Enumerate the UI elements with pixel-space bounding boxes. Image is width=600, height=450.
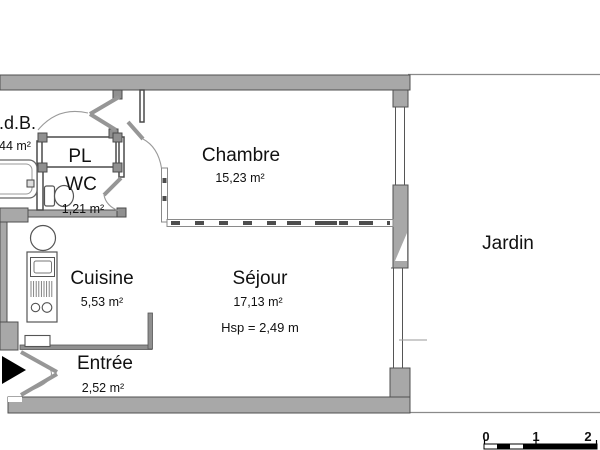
room-label-sdb: S.d.B. xyxy=(0,113,36,133)
room-label-pl: PL xyxy=(68,146,91,167)
dashed-partition xyxy=(162,168,394,227)
post xyxy=(38,163,47,172)
left-wall-band xyxy=(0,208,28,222)
chambre-door-leaf xyxy=(128,122,143,139)
bottom-wall xyxy=(8,397,410,413)
top-wall xyxy=(0,75,410,90)
right-wall-bottom-block xyxy=(390,368,410,397)
room-label-jardin: Jardin xyxy=(482,233,534,254)
room-area-chambre: 15,23 m² xyxy=(215,171,264,185)
chambre-window xyxy=(396,107,405,185)
room-label-sejour: Séjour xyxy=(233,268,289,289)
toilet-tank xyxy=(45,186,55,206)
hob-burner xyxy=(31,303,39,311)
exterior-walls xyxy=(0,75,410,413)
kitchen-shelf xyxy=(25,336,50,347)
right-wall-stub-top xyxy=(393,90,408,107)
entrance-pillar xyxy=(0,322,18,350)
kitchen-partition-v xyxy=(148,313,153,349)
sdb-door-arc xyxy=(38,111,88,130)
room-area-wc: 1,21 m² xyxy=(62,202,104,216)
scale-bar-segment xyxy=(497,444,510,449)
hob-burner xyxy=(42,303,52,313)
kitchen-sink xyxy=(31,226,56,251)
room-area-cuisine: 5,53 m² xyxy=(81,295,123,309)
scale-label-0: 0 xyxy=(482,429,489,444)
bottom-wall-notch xyxy=(8,397,22,402)
floor-plan: S.d.B. 44 m² PL WC 1,21 m² Chambre 15,23… xyxy=(0,0,600,450)
room-hsp-sejour: Hsp = 2,49 m xyxy=(221,320,299,335)
room-area-sdb: 44 m² xyxy=(0,139,31,153)
room-label-chambre: Chambre xyxy=(202,145,280,166)
wc-door-leaf xyxy=(104,178,121,195)
entrance-arrow-icon xyxy=(2,356,26,384)
post xyxy=(113,163,122,172)
room-area-entree: 2,52 m² xyxy=(82,381,124,395)
room-label-wc: WC xyxy=(65,174,97,195)
scale-label-2: 2 xyxy=(584,429,591,444)
partition-vertical xyxy=(162,168,168,222)
chambre-door-jamb xyxy=(140,90,144,122)
sejour-window xyxy=(394,268,403,368)
room-label-entree: Entrée xyxy=(77,353,133,374)
post xyxy=(117,208,126,217)
post xyxy=(38,133,47,142)
entrance-door-arc xyxy=(21,353,52,394)
scale-bar: 0 1 2 xyxy=(482,429,597,449)
bathtub-faucet xyxy=(27,180,34,187)
left-wall xyxy=(0,222,7,322)
floor-plan-drawing: S.d.B. 44 m² PL WC 1,21 m² Chambre 15,23… xyxy=(0,0,600,450)
sdb-door-leaf xyxy=(90,97,119,114)
room-area-sejour: 17,13 m² xyxy=(233,295,282,309)
post xyxy=(113,133,122,142)
room-labels: S.d.B. 44 m² PL WC 1,21 m² Chambre 15,23… xyxy=(0,113,534,395)
sdb-door-leaf xyxy=(90,114,116,130)
bathtub xyxy=(0,160,37,198)
fixtures xyxy=(0,160,74,347)
room-label-cuisine: Cuisine xyxy=(70,268,133,289)
oven-door xyxy=(34,261,52,273)
chambre-door-arc xyxy=(143,139,162,168)
scale-bar-segment xyxy=(523,444,597,449)
